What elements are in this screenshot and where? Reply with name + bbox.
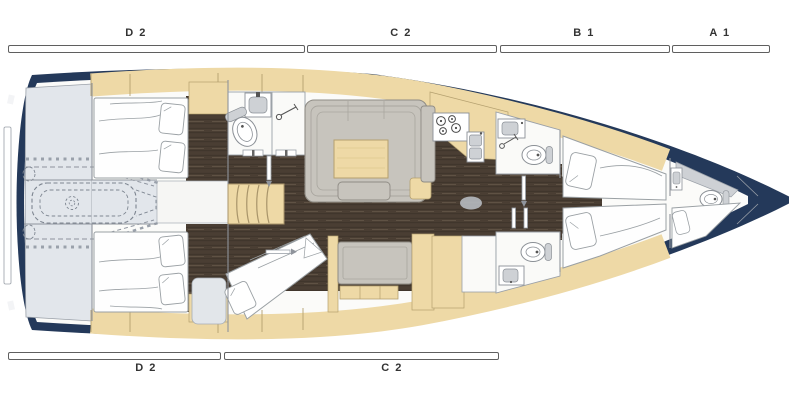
aft-head [224,92,305,156]
door-leaf [522,176,526,200]
transom-notch-bottom [7,300,15,310]
aft-cabin-port [94,98,188,178]
pillow [158,235,185,267]
toilet-icon [522,146,553,165]
swim-platform-strip [4,127,11,284]
sink-icon [671,168,682,190]
floor-forward-corridor [500,164,562,240]
cabinet-block [432,236,464,308]
settee-column [328,236,338,312]
galley-sink-icon [467,132,484,162]
pillow [158,141,185,173]
sink-icon [499,266,524,285]
head-wall-block [462,236,496,292]
settee [338,242,412,284]
garage-middle-extension [92,180,157,224]
companionway-stairs [228,184,284,224]
door-leaf [512,208,516,228]
settee-cabinet [340,286,398,299]
floor-mat [460,197,482,210]
pillow [158,103,185,135]
door-leaf [524,208,528,228]
yacht-floorplan-page: D 2 C 2 B 1 A 1 D 2 C 2 [0,0,800,405]
transom-notch-top [7,94,15,104]
door-leaf [266,250,290,254]
toilet-icon [521,243,552,262]
settee-column [412,234,434,310]
companionway-landing [157,181,228,223]
cabin-seat [192,278,226,324]
ottoman [338,182,390,200]
wardrobe-aft-top [189,82,228,114]
door-leaf [267,156,271,180]
saloon-table [334,140,388,178]
garage-floor [25,84,92,321]
pillow [158,273,185,305]
sink-icon [498,119,525,138]
floorplan-drawing [0,0,800,405]
sink-icon [245,92,271,117]
